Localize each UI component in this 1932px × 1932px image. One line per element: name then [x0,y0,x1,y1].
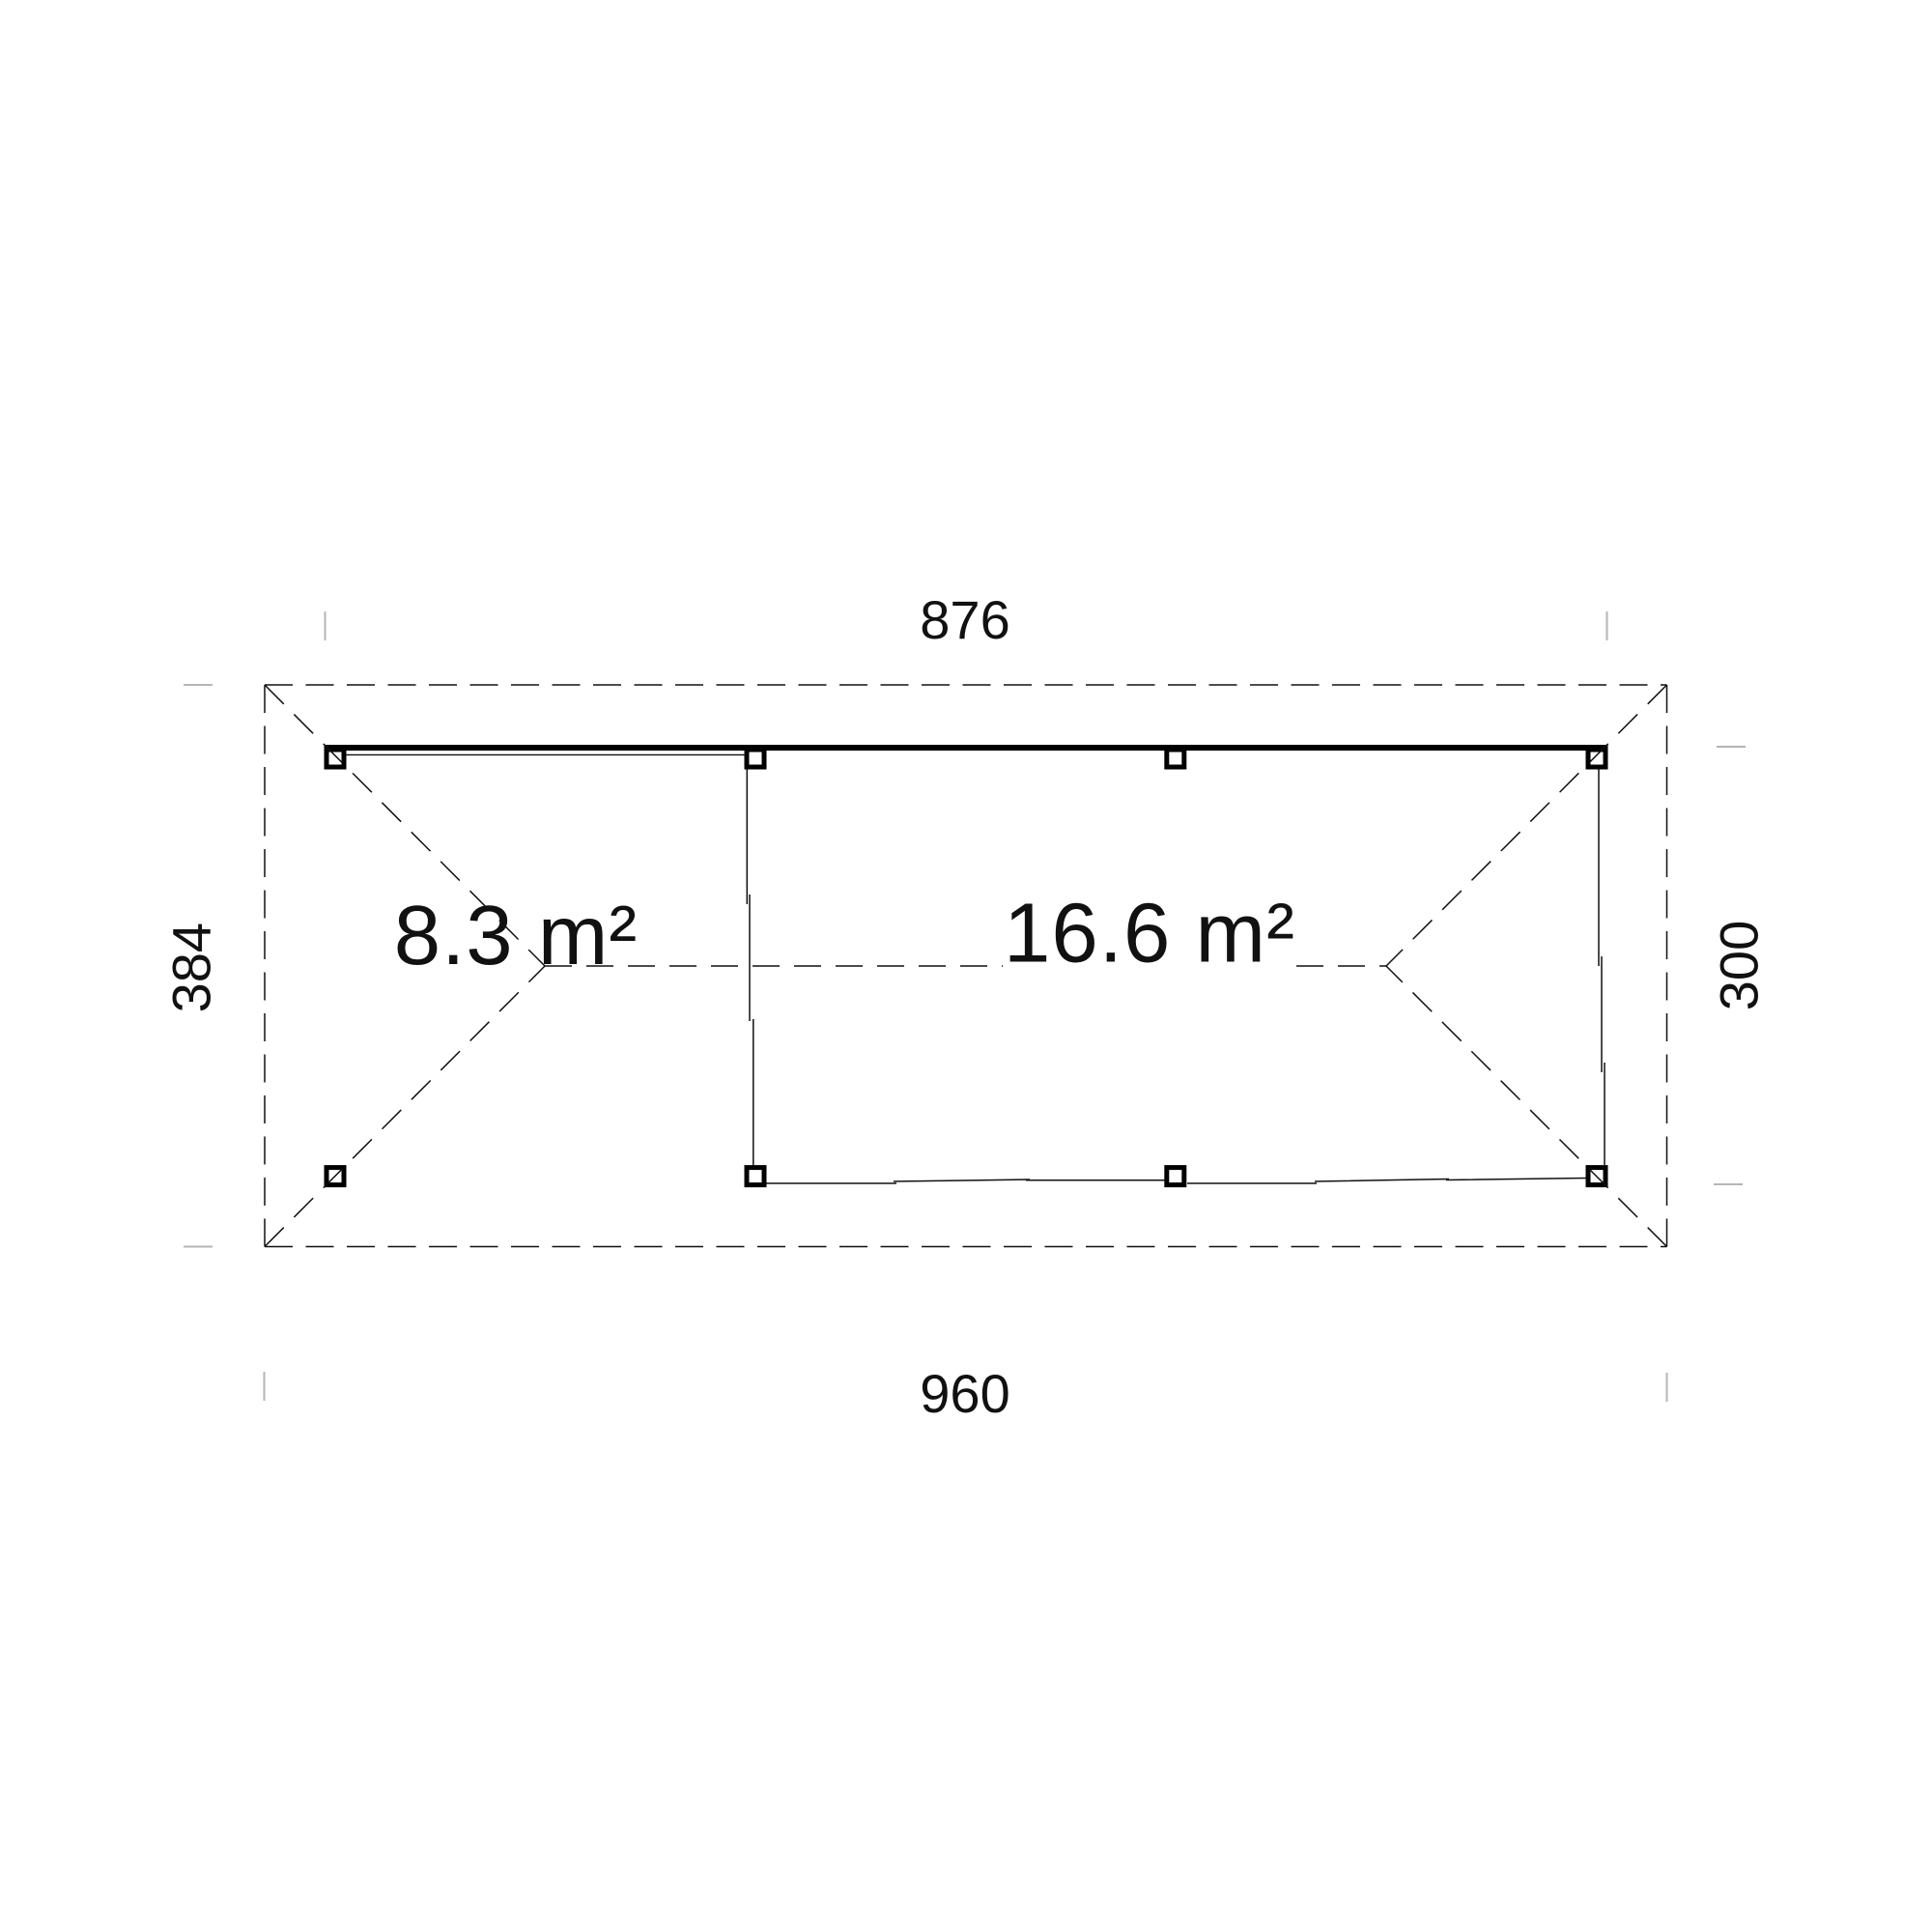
svg-text:16.6 m²: 16.6 m² [1004,887,1295,980]
svg-text:876: 876 [920,589,1009,650]
svg-text:8.3 m²: 8.3 m² [394,889,639,982]
svg-text:960: 960 [920,1363,1009,1424]
svg-text:300: 300 [1708,921,1769,1010]
svg-text:384: 384 [160,923,221,1012]
